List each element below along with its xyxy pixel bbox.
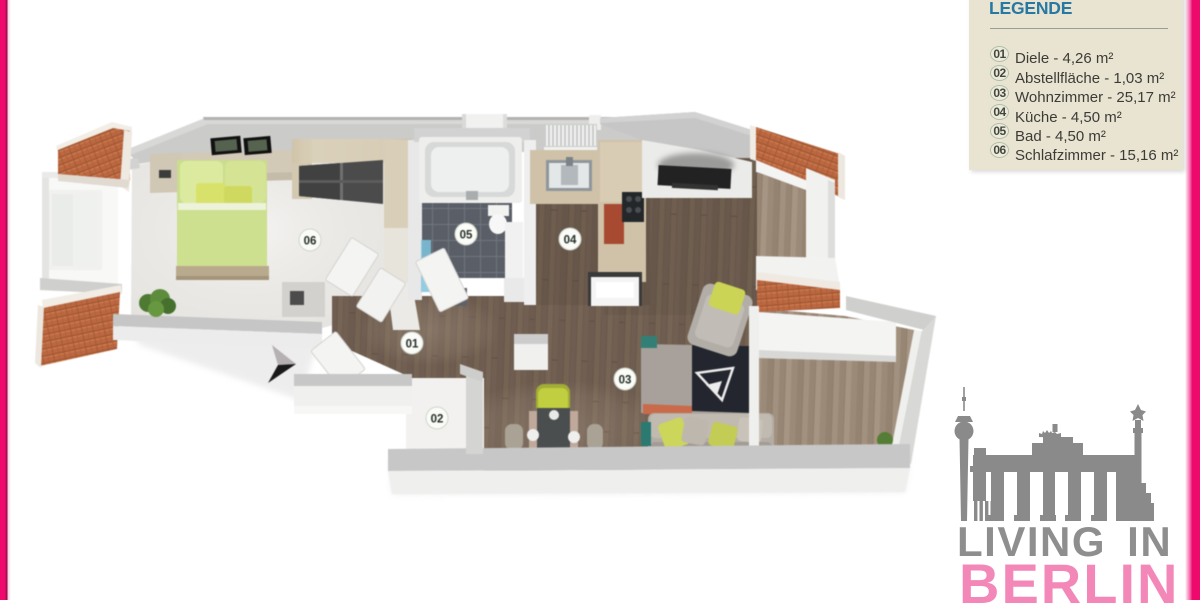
svg-text:02: 02 [431, 414, 444, 426]
svg-text:04: 04 [564, 235, 577, 247]
svg-text:05: 05 [460, 230, 473, 242]
svg-text:06: 06 [304, 236, 317, 248]
svg-text:03: 03 [619, 375, 632, 387]
svg-text:01: 01 [406, 339, 419, 351]
